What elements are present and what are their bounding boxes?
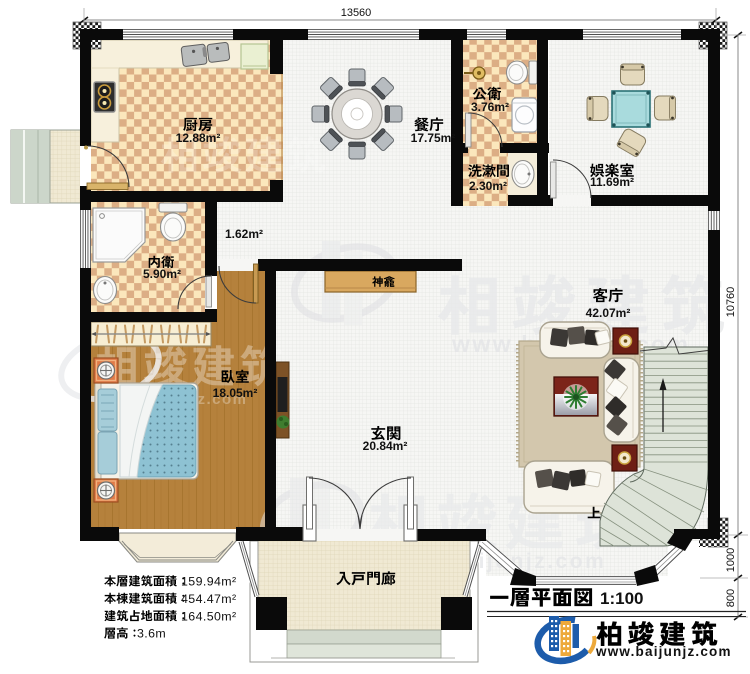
svg-text:20.84m²: 20.84m² xyxy=(363,439,408,453)
svg-text:10760: 10760 xyxy=(725,287,737,318)
svg-text:1:100: 1:100 xyxy=(600,589,643,608)
svg-text:18.05m²: 18.05m² xyxy=(213,386,258,400)
svg-text:5.90m²: 5.90m² xyxy=(143,267,181,281)
svg-text:1000: 1000 xyxy=(725,548,737,572)
svg-text:www.baijunjz.com: www.baijunjz.com xyxy=(595,644,732,659)
svg-text:800: 800 xyxy=(725,589,737,607)
svg-text:12.88m²: 12.88m² xyxy=(176,131,221,145)
svg-text:13560: 13560 xyxy=(341,7,372,19)
svg-text:17.75m²: 17.75m² xyxy=(411,131,456,145)
svg-text:42.07m²: 42.07m² xyxy=(586,306,631,320)
svg-text:159.94m²: 159.94m² xyxy=(181,575,237,589)
svg-text:2.30m²: 2.30m² xyxy=(469,179,507,193)
svg-text:11.69m²: 11.69m² xyxy=(590,175,634,189)
svg-text:454.47m²: 454.47m² xyxy=(181,592,237,606)
svg-text:3.76m²: 3.76m² xyxy=(471,100,509,114)
svg-text:164.50m²: 164.50m² xyxy=(181,609,237,623)
svg-text:3.6m: 3.6m xyxy=(137,627,166,641)
svg-text:1.62m²: 1.62m² xyxy=(225,227,263,241)
